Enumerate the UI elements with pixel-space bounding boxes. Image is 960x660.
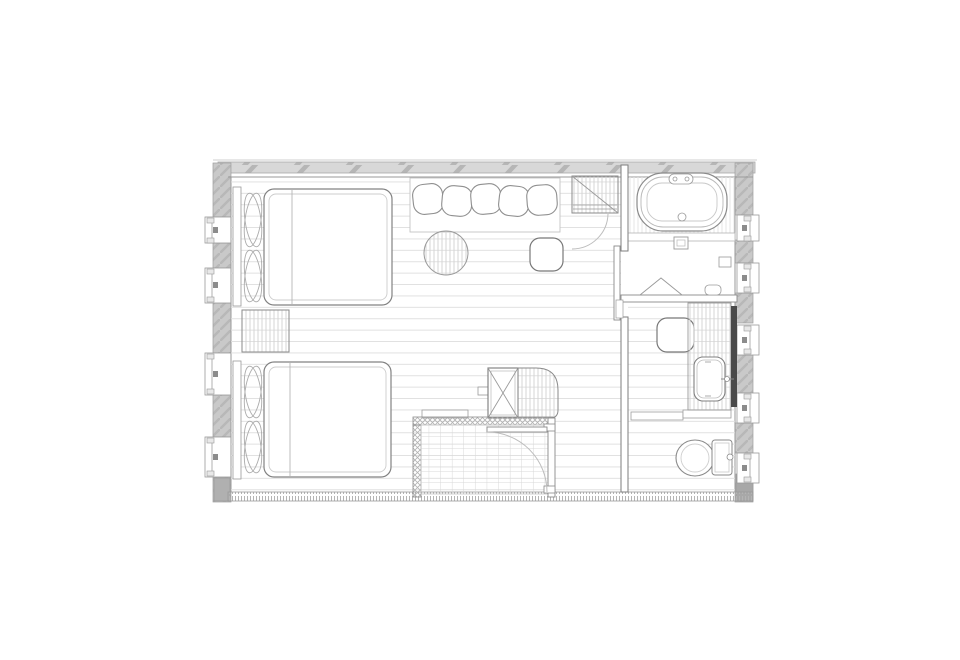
toilet-shelf bbox=[631, 412, 683, 420]
window-cap bbox=[744, 287, 751, 292]
bed2-mattress bbox=[264, 362, 391, 477]
soap-shelf bbox=[705, 285, 721, 295]
window-mullion bbox=[742, 405, 747, 411]
entry-wall-north bbox=[413, 417, 553, 425]
window-mullion bbox=[213, 454, 218, 460]
window-cap bbox=[207, 269, 214, 274]
window-cap bbox=[744, 417, 751, 422]
sink-basin bbox=[694, 357, 725, 401]
sofa-pillow bbox=[498, 185, 531, 218]
sink-faucet-handle bbox=[725, 377, 730, 382]
bed1-mattress bbox=[264, 189, 392, 305]
nightstand bbox=[242, 310, 289, 352]
right-wall-segment bbox=[735, 293, 753, 323]
sofa-pillow bbox=[526, 184, 558, 216]
window-cap bbox=[207, 238, 214, 243]
window-mullion bbox=[742, 465, 747, 471]
window-cap bbox=[744, 394, 751, 399]
right-wall-segment bbox=[735, 355, 753, 393]
right-wall-segment bbox=[735, 240, 753, 263]
window-mullion bbox=[742, 225, 747, 231]
window-cap bbox=[207, 438, 214, 443]
window-mullion bbox=[213, 227, 218, 233]
sofa-pillow bbox=[470, 183, 503, 216]
partition-wall-upper bbox=[621, 165, 628, 251]
shower-fixture bbox=[719, 257, 731, 267]
sofa-pillow bbox=[441, 185, 474, 218]
window-cap bbox=[744, 264, 751, 269]
partition-wall-lower bbox=[621, 317, 628, 492]
window-cap bbox=[207, 471, 214, 476]
window-cap bbox=[744, 326, 751, 331]
window-cap bbox=[744, 216, 751, 221]
ottoman bbox=[530, 238, 563, 271]
window-cap bbox=[207, 218, 214, 223]
tub-drain bbox=[678, 213, 686, 221]
window-cap bbox=[207, 389, 214, 394]
entry-door-leaf bbox=[487, 427, 547, 432]
window-cap bbox=[207, 354, 214, 359]
toilet-flush-knob bbox=[727, 454, 733, 460]
luggage-bench bbox=[518, 368, 558, 418]
bathroom-south-wall bbox=[621, 295, 737, 302]
bed2-headboard bbox=[233, 361, 241, 479]
entry-tile-floor bbox=[421, 425, 548, 494]
window-mullion bbox=[742, 275, 747, 281]
column-stub bbox=[478, 387, 488, 395]
toilet-shelf bbox=[683, 410, 731, 418]
window-cap bbox=[744, 454, 751, 459]
window-cap bbox=[207, 297, 214, 302]
window-mullion bbox=[213, 282, 218, 288]
right-wall-segment bbox=[735, 423, 753, 453]
bathtub-faucet bbox=[669, 174, 693, 184]
right-wall-segment bbox=[735, 163, 753, 215]
left-wall-segment bbox=[213, 395, 231, 437]
shower-corner-shelf bbox=[640, 278, 682, 295]
floor-plan-canvas bbox=[0, 0, 960, 660]
window-cap bbox=[744, 477, 751, 482]
plan-layer bbox=[205, 160, 759, 502]
window-cap bbox=[744, 236, 751, 241]
door-jamb bbox=[544, 486, 555, 493]
sliding-door-handle bbox=[616, 300, 623, 318]
sofa-pillow bbox=[412, 183, 445, 216]
floor-plan-svg bbox=[0, 0, 960, 660]
shower-control bbox=[674, 237, 688, 249]
toilet-bowl bbox=[676, 440, 714, 476]
round-table bbox=[424, 231, 468, 275]
window-cap bbox=[744, 349, 751, 354]
window-mullion bbox=[213, 371, 218, 377]
window-mullion bbox=[742, 337, 747, 343]
vanity-mirror bbox=[731, 306, 737, 407]
top-wall-band bbox=[218, 162, 755, 173]
left-wall-segment bbox=[213, 163, 231, 217]
left-wall-segment bbox=[213, 303, 231, 353]
bed1-headboard bbox=[233, 187, 241, 306]
left-wall-segment bbox=[213, 243, 231, 268]
entry-wall-west bbox=[413, 425, 421, 497]
